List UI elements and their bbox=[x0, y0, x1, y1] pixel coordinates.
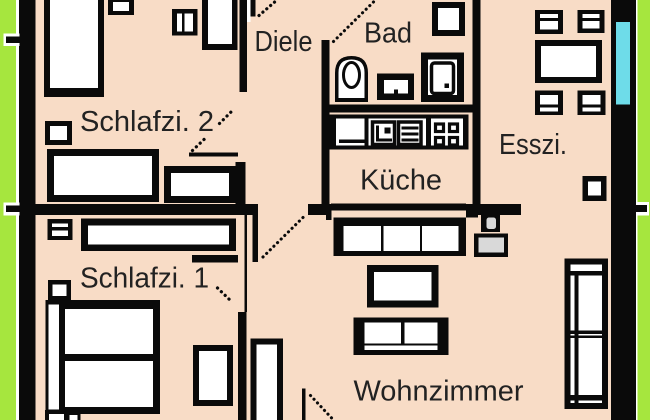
svg-text:Esszi.: Esszi. bbox=[499, 129, 567, 161]
svg-text:Schlafzi. 2: Schlafzi. 2 bbox=[80, 106, 214, 138]
svg-text:Diele: Diele bbox=[255, 26, 313, 58]
svg-text:Wohnzimmer: Wohnzimmer bbox=[354, 376, 524, 408]
svg-text:Schlafzi. 1: Schlafzi. 1 bbox=[80, 263, 209, 295]
svg-text:Küche: Küche bbox=[360, 165, 442, 197]
svg-text:Bad: Bad bbox=[364, 18, 412, 50]
